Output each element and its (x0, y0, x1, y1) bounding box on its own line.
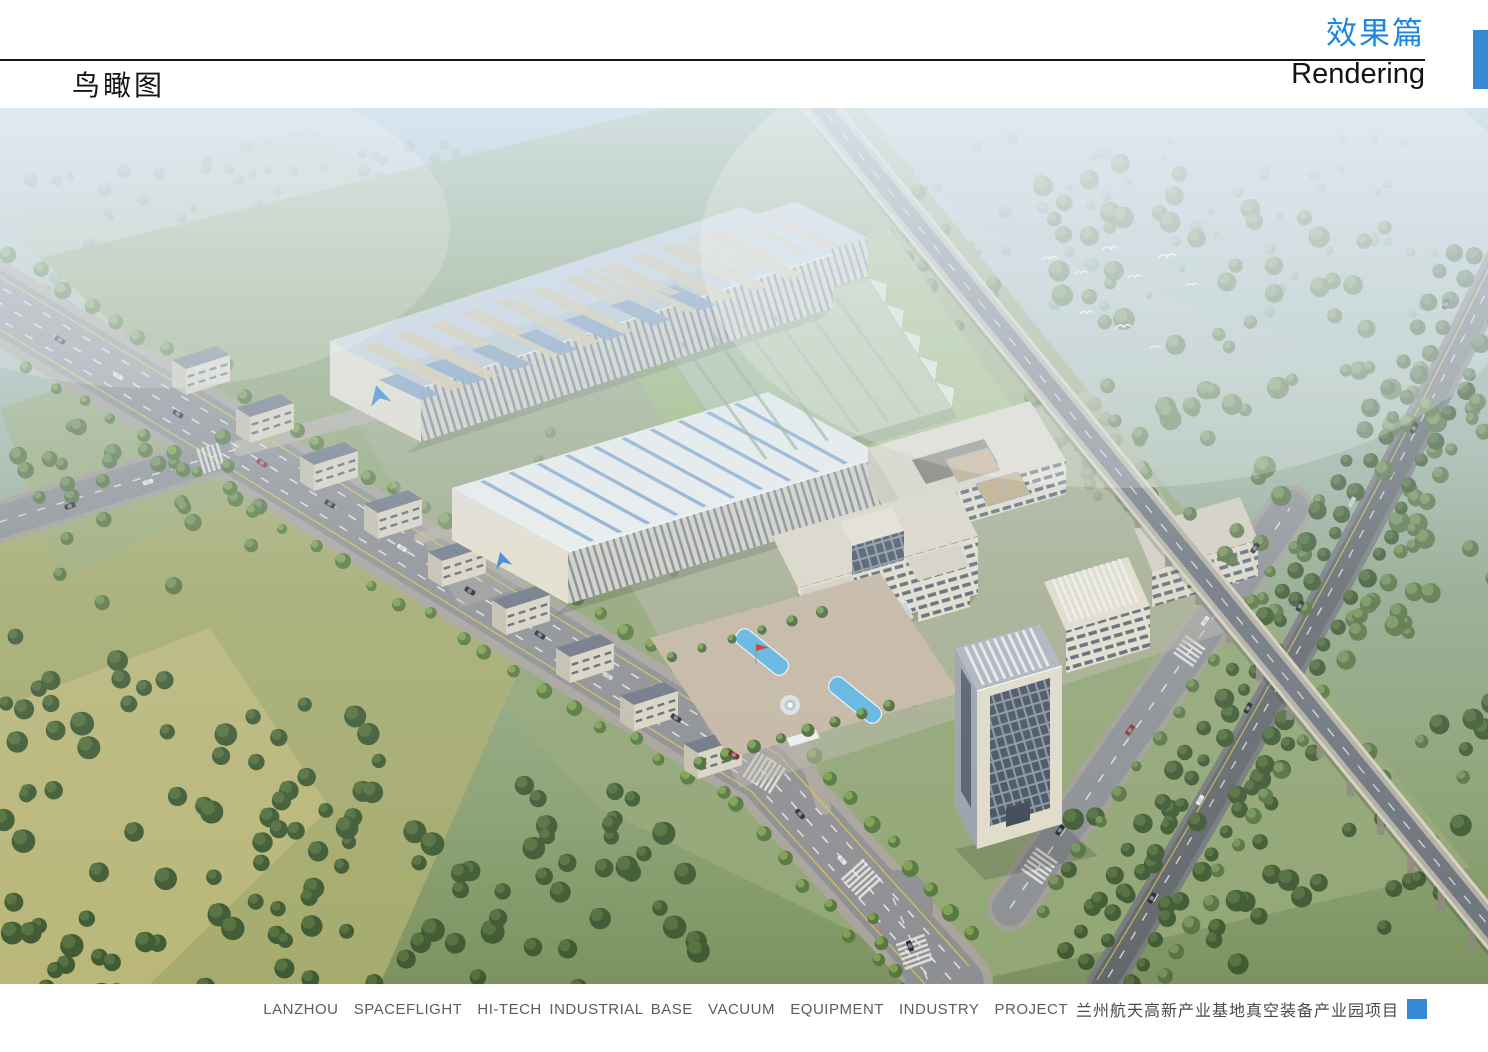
atmospheric-haze (0, 108, 1488, 984)
footer-accent-square (1407, 999, 1427, 1019)
footer-caption: LANZHOU SPACEFLIGHT HI-TECH INDUSTRIAL B… (263, 997, 1427, 1021)
aerial-rendering-canvas (0, 108, 1488, 984)
section-header: 效果篇 Rendering (1291, 18, 1425, 89)
section-title-en: Rendering (1291, 60, 1425, 89)
page-title-left: 鸟瞰图 (72, 64, 165, 104)
accent-tab (1473, 30, 1488, 89)
footer-caption-cn: 兰州航天高新产业基地真空装备产业园项目 (1076, 997, 1399, 1021)
footer-caption-en: LANZHOU SPACEFLIGHT HI-TECH INDUSTRIAL B… (263, 1001, 1068, 1018)
aerial-rendering (0, 108, 1488, 984)
header-rule (0, 59, 1425, 61)
section-title-cn: 效果篇 (1291, 18, 1425, 49)
